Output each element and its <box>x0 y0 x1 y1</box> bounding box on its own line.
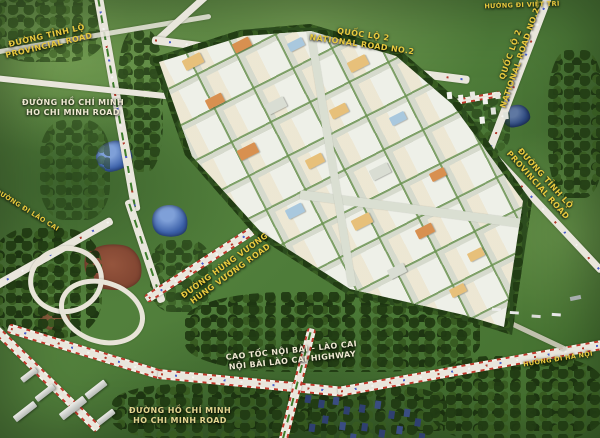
building-block <box>449 283 467 298</box>
forest <box>40 120 110 220</box>
industrial-park-model-photo: ĐƯỜNG TỈNH LỘ PROVINCIAL ROAD ĐƯỜNG HỒ C… <box>0 0 600 438</box>
farm-buildings <box>447 92 453 99</box>
road-label-national-road-2-right: QUỐC LỘ 2 NATIONAL ROAD NO.2 <box>488 0 544 113</box>
road-label-ho-chi-minh-top: ĐƯỜNG HỒ CHÍ MINH HO CHI MINH ROAD <box>18 98 128 119</box>
pond <box>149 201 192 241</box>
building-block <box>387 262 408 279</box>
building-block <box>182 52 205 71</box>
building-block <box>389 111 407 126</box>
warehouse <box>84 379 107 399</box>
building-block <box>265 96 288 115</box>
forest <box>548 50 600 198</box>
warehouse <box>13 401 38 423</box>
building-block <box>467 247 485 262</box>
truck <box>570 295 582 301</box>
building-block <box>232 36 253 53</box>
warehouse <box>34 384 55 402</box>
building-block <box>347 54 370 73</box>
building-block <box>329 102 350 119</box>
building-block <box>237 142 260 161</box>
building-block <box>285 202 306 219</box>
village-houses <box>304 395 311 404</box>
building-block <box>305 152 326 169</box>
building-block <box>429 167 447 182</box>
trucks <box>492 308 501 312</box>
building-block <box>205 92 226 109</box>
building-block <box>369 162 392 181</box>
building-block <box>415 222 436 239</box>
building-block <box>351 212 374 231</box>
road-label-ho-chi-minh-bottom: ĐƯỜNG HỒ CHÍ MINH HO CHI MINH ROAD <box>110 406 250 427</box>
